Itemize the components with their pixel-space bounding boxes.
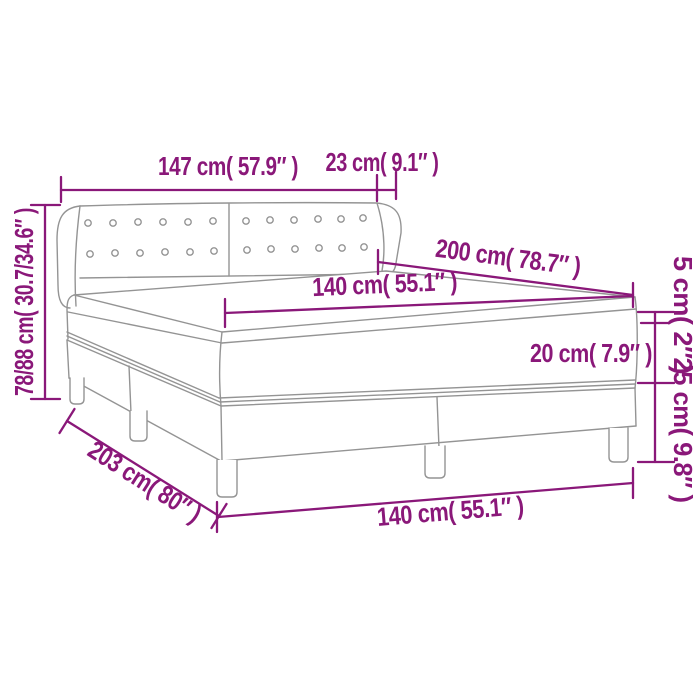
topper-thickness-label: 5 cm( 2″ )	[668, 256, 698, 374]
bed-leg	[609, 428, 628, 462]
bed-dimension-diagram: 147 cm( 57.9″ ) 23 cm( 9.1″ ) 78/88 cm( …	[0, 0, 700, 700]
mattress-welt-foot-a	[219, 380, 635, 398]
headboard-left-roll	[57, 206, 80, 308]
base-foot-divider	[437, 397, 439, 448]
mattress-width-label: 140 cm( 55.1″ )	[312, 266, 458, 302]
headboard-tufting-buttons	[85, 215, 367, 257]
base-right-edge	[635, 388, 636, 426]
mattress-thickness-label: 20 cm( 7.9″ )	[530, 338, 652, 368]
headboard-width-label: 147 cm( 57.9″ )	[158, 151, 298, 181]
base-foot-top-edge	[221, 388, 635, 406]
total-height-label: 78/88 cm( 30.7/34.6″ )	[9, 208, 39, 396]
mattress-welt-left-a	[67, 332, 219, 398]
base-left-edge	[67, 340, 69, 378]
dimension-tick	[60, 409, 75, 433]
base-height-label: 25 cm( 9.8″ )	[668, 358, 698, 503]
base-front-corner-edge	[221, 406, 222, 461]
headboard-wing-depth-label: 23 cm( 9.1″ )	[326, 147, 439, 177]
headboard-left-roll-inner	[75, 206, 80, 306]
bed-leg	[130, 411, 147, 441]
base-width-label: 140 cm( 55.1″ )	[376, 490, 525, 532]
mattress-welt-foot-b	[220, 384, 635, 402]
bed-leg	[70, 378, 84, 404]
base-length-label: 203 cm( 80″ )	[83, 434, 207, 528]
diagram-stage: 147 cm( 57.9″ ) 23 cm( 9.1″ ) 78/88 cm( …	[0, 0, 700, 700]
bed-leg	[217, 460, 237, 497]
bed-leg	[425, 446, 445, 478]
mattress-welt-left-b	[67, 336, 220, 402]
base-side-divider	[129, 366, 131, 413]
base-side-top-edge	[67, 340, 221, 406]
